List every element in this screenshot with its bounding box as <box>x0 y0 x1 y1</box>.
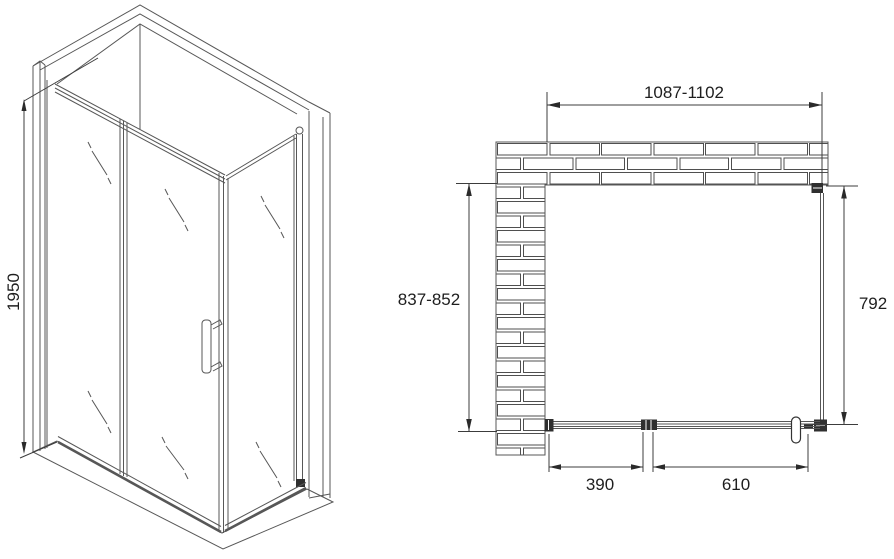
top-frame <box>33 5 330 183</box>
width-dimension-label: 1087-1102 <box>644 83 724 102</box>
side-panel-plan <box>804 183 827 432</box>
fixed-panel-front <box>47 80 127 477</box>
door-segment-dimension-label: 610 <box>722 475 750 494</box>
dimension-door-segment: 610 <box>653 432 808 494</box>
sliding-door <box>162 189 222 479</box>
corner-post <box>219 173 228 533</box>
dimension-height: 1950 <box>4 58 98 458</box>
side-panel <box>256 127 305 487</box>
dimension-fixed-segment: 390 <box>549 432 643 494</box>
brick-wall <box>496 142 828 455</box>
wall-profile-right <box>309 111 330 498</box>
door-rail-plan <box>545 417 821 443</box>
depth-dimension-label: 837-852 <box>398 290 460 309</box>
drawing-svg: 1950 1087-1102 <box>0 0 894 559</box>
shower-tray <box>33 437 333 550</box>
height-dimension-label: 1950 <box>4 273 23 311</box>
door-handle-plan <box>792 417 801 443</box>
dimension-depth: 837-852 <box>398 184 497 432</box>
side-panel-dimension-label: 792 <box>859 294 887 313</box>
isometric-view: 1950 <box>4 5 333 549</box>
shower-enclosure-technical-drawing: 1950 1087-1102 <box>0 0 894 559</box>
plan-view: 1087-1102 837-852 792 390 610 <box>398 83 887 494</box>
wall-profile-left <box>33 61 45 452</box>
fixed-segment-dimension-label: 390 <box>586 475 614 494</box>
